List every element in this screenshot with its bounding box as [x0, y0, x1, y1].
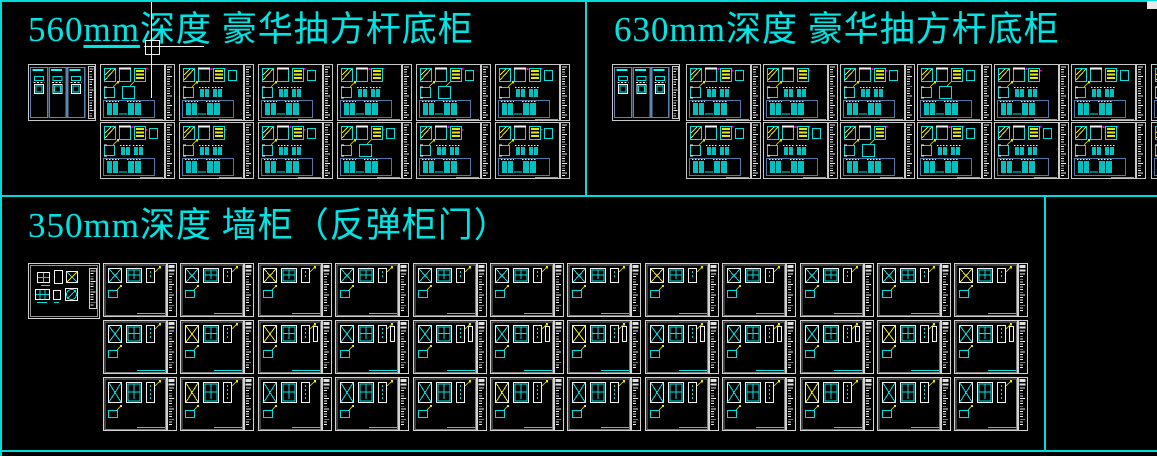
cabinet-elevation-panel[interactable] — [877, 320, 951, 374]
cabinet-elevation-panel-drawing — [180, 320, 254, 374]
cabinet-elevation-panel-drawing — [954, 377, 1028, 431]
cabinet-elevation-panel-drawing — [645, 377, 719, 431]
cabinet-elevation-panel-drawing — [686, 64, 761, 121]
cabinet-elevation-panel[interactable] — [337, 122, 412, 179]
cabinet-elevation-panel[interactable] — [954, 377, 1028, 431]
cabinet-elevation-panel-drawing — [337, 122, 412, 179]
viewport-border-top — [0, 0, 1157, 2]
cabinet-elevation-panel-drawing — [258, 64, 333, 121]
cabinet-elevation-panel[interactable] — [103, 320, 177, 374]
cabinet-elevation-panel[interactable] — [877, 377, 951, 431]
cabinet-elevation-panel-drawing — [800, 263, 874, 317]
cabinet-elevation-panel[interactable] — [180, 263, 254, 317]
cabinet-elevation-panel[interactable] — [800, 263, 874, 317]
cabinet-elevation-panel-drawing — [180, 263, 254, 317]
cabinet-elevation-panel[interactable] — [840, 64, 915, 121]
cabinet-elevation-panel[interactable] — [490, 377, 564, 431]
title-text: 深度 豪华抽方杆底柜 — [140, 10, 474, 49]
cabinet-elevation-panel[interactable] — [917, 64, 992, 121]
clipped-cabinet-panel[interactable] — [1151, 122, 1157, 179]
title-depth-unit: mm — [84, 206, 140, 245]
cabinet-elevation-panel[interactable] — [567, 320, 641, 374]
cabinet-elevation-panel-drawing — [763, 122, 838, 179]
cabinet-elevation-panel[interactable] — [763, 64, 838, 121]
cabinet-elevation-panel[interactable] — [722, 263, 796, 317]
cabinet-elevation-panel-drawing — [180, 377, 254, 431]
cabinet-elevation-panel-drawing — [258, 377, 332, 431]
index-legend-panel-drawing — [28, 263, 100, 319]
clipped-cabinet-panel-drawing — [1151, 64, 1157, 121]
cabinet-elevation-panel[interactable] — [686, 64, 761, 121]
cabinet-elevation-panel-drawing — [917, 64, 992, 121]
cabinet-elevation-panel-drawing — [877, 377, 951, 431]
cabinet-elevation-panel-drawing — [567, 320, 641, 374]
cabinet-elevation-panel[interactable] — [800, 377, 874, 431]
cabinet-elevation-panel-drawing — [490, 377, 564, 431]
screen-artifact — [1147, 1, 1157, 9]
index-legend-panel[interactable] — [28, 64, 96, 121]
cabinet-elevation-panel[interactable] — [258, 377, 332, 431]
cabinet-elevation-panel-drawing — [994, 122, 1069, 179]
cad-drawing-area: 560mm深度 豪华抽方杆底柜 630mm深度 豪华抽方杆底柜 350mm深度 … — [0, 0, 1157, 456]
cabinet-elevation-panel[interactable] — [722, 377, 796, 431]
cabinet-elevation-panel[interactable] — [567, 263, 641, 317]
cabinet-elevation-panel-drawing — [413, 263, 487, 317]
index-legend-panel[interactable] — [28, 263, 100, 320]
cabinet-elevation-panel[interactable] — [335, 320, 409, 374]
cabinet-elevation-panel-drawing — [100, 122, 175, 179]
cabinet-elevation-panel-drawing — [954, 263, 1028, 317]
title-text: 深度 墙柜（反弹柜门） — [140, 206, 510, 245]
cabinet-elevation-panel-drawing — [258, 263, 332, 317]
cabinet-elevation-panel-drawing — [917, 122, 992, 179]
cabinet-elevation-panel[interactable] — [840, 122, 915, 179]
cabinet-elevation-panel[interactable] — [645, 320, 719, 374]
cabinet-elevation-panel-drawing — [763, 64, 838, 121]
cabinet-elevation-panel[interactable] — [103, 377, 177, 431]
cabinet-elevation-panel[interactable] — [917, 122, 992, 179]
section-title-560[interactable]: 560mm深度 豪华抽方杆底柜 — [28, 10, 474, 50]
cabinet-elevation-panel-drawing — [877, 320, 951, 374]
cabinet-elevation-panel[interactable] — [954, 320, 1028, 374]
section-title-630[interactable]: 630mm深度 豪华抽方杆底柜 — [614, 10, 1060, 50]
cabinet-elevation-panel[interactable] — [179, 122, 254, 179]
cabinet-elevation-panel-drawing — [645, 320, 719, 374]
cabinet-elevation-panel-drawing — [258, 122, 333, 179]
cabinet-elevation-panel[interactable] — [490, 263, 564, 317]
cabinet-elevation-panel[interactable] — [994, 64, 1069, 121]
cabinet-elevation-panel-drawing — [800, 320, 874, 374]
clipped-cabinet-panel[interactable] — [1151, 64, 1157, 121]
cabinet-elevation-panel-drawing — [1071, 122, 1146, 179]
cabinet-elevation-panel-drawing — [495, 122, 570, 179]
cabinet-elevation-panel-drawing — [567, 377, 641, 431]
title-depth-value: 350 — [28, 206, 84, 245]
cabinet-elevation-panel[interactable] — [180, 377, 254, 431]
cabinet-elevation-panel[interactable] — [763, 122, 838, 179]
cabinet-elevation-panel-drawing — [840, 122, 915, 179]
cabinet-elevation-panel[interactable] — [258, 122, 333, 179]
cabinet-elevation-panel-drawing — [877, 263, 951, 317]
section-divider-vertical-right — [1044, 195, 1046, 452]
cabinet-elevation-panel[interactable] — [179, 64, 254, 121]
cabinet-elevation-panel[interactable] — [413, 320, 487, 374]
cabinet-elevation-panel[interactable] — [686, 122, 761, 179]
index-legend-panel-drawing — [28, 64, 96, 121]
cabinet-elevation-panel[interactable] — [1071, 64, 1146, 121]
cabinet-elevation-panel[interactable] — [258, 64, 333, 121]
cabinet-elevation-panel-drawing — [103, 377, 177, 431]
cabinet-elevation-panel[interactable] — [335, 377, 409, 431]
cabinet-elevation-panel[interactable] — [335, 263, 409, 317]
cabinet-elevation-panel[interactable] — [416, 122, 491, 179]
cabinet-elevation-panel-drawing — [416, 64, 491, 121]
cabinet-elevation-panel-drawing — [335, 377, 409, 431]
cabinet-elevation-panel[interactable] — [416, 64, 491, 121]
title-depth-value: 560 — [28, 10, 84, 49]
cabinet-elevation-panel[interactable] — [645, 263, 719, 317]
cabinet-elevation-panel-drawing — [1071, 64, 1146, 121]
cabinet-elevation-panel-drawing — [686, 122, 761, 179]
cabinet-elevation-panel-drawing — [800, 377, 874, 431]
cabinet-elevation-panel-drawing — [100, 64, 175, 121]
cabinet-elevation-panel-drawing — [413, 377, 487, 431]
section-divider-horizontal — [0, 195, 1157, 197]
cabinet-elevation-panel-drawing — [179, 64, 254, 121]
clipped-cabinet-panel-drawing — [1151, 122, 1157, 179]
cabinet-elevation-panel[interactable] — [994, 122, 1069, 179]
index-legend-panel[interactable] — [612, 64, 680, 121]
cabinet-elevation-panel-drawing — [337, 64, 412, 121]
cabinet-elevation-panel[interactable] — [877, 263, 951, 317]
cabinet-elevation-panel-drawing — [994, 64, 1069, 121]
cabinet-elevation-panel[interactable] — [954, 263, 1028, 317]
cabinet-elevation-panel[interactable] — [258, 320, 332, 374]
cabinet-elevation-panel[interactable] — [495, 64, 570, 121]
cabinet-elevation-panel[interactable] — [180, 320, 254, 374]
cabinet-elevation-panel-drawing — [722, 263, 796, 317]
title-depth-value: 630 — [614, 10, 670, 49]
cabinet-elevation-panel-drawing — [335, 263, 409, 317]
crosshair-pickbox — [145, 40, 160, 55]
cabinet-elevation-panel-drawing — [490, 320, 564, 374]
cabinet-elevation-panel-drawing — [495, 64, 570, 121]
cabinet-elevation-panel[interactable] — [722, 320, 796, 374]
cabinet-elevation-panel-drawing — [645, 263, 719, 317]
cabinet-elevation-panel-drawing — [722, 377, 796, 431]
cabinet-elevation-panel-drawing — [490, 263, 564, 317]
cabinet-elevation-panel[interactable] — [413, 377, 487, 431]
title-text: 深度 豪华抽方杆底柜 — [726, 10, 1060, 49]
title-depth-unit: mm — [670, 10, 726, 49]
cabinet-elevation-panel[interactable] — [100, 122, 175, 179]
section-title-350[interactable]: 350mm深度 墙柜（反弹柜门） — [28, 206, 510, 246]
viewport-border-bottom — [0, 450, 1157, 452]
title-depth-unit: mm — [84, 10, 140, 49]
cabinet-elevation-panel[interactable] — [337, 64, 412, 121]
cabinet-elevation-panel[interactable] — [1071, 122, 1146, 179]
cabinet-elevation-panel-drawing — [567, 263, 641, 317]
cabinet-elevation-panel[interactable] — [800, 320, 874, 374]
cabinet-elevation-panel-drawing — [413, 320, 487, 374]
cabinet-elevation-panel-drawing — [416, 122, 491, 179]
cabinet-elevation-panel-drawing — [258, 320, 332, 374]
cabinet-elevation-panel[interactable] — [103, 263, 177, 317]
cabinet-elevation-panel-drawing — [722, 320, 796, 374]
section-divider-vertical — [585, 0, 587, 197]
cabinet-elevation-panel-drawing — [103, 320, 177, 374]
cabinet-elevation-panel-drawing — [954, 320, 1028, 374]
viewport-border-left — [0, 0, 2, 456]
cabinet-elevation-panel[interactable] — [100, 64, 175, 121]
cabinet-elevation-panel[interactable] — [490, 320, 564, 374]
cabinet-elevation-panel[interactable] — [567, 377, 641, 431]
cabinet-elevation-panel[interactable] — [495, 122, 570, 179]
cabinet-elevation-panel-drawing — [179, 122, 254, 179]
cabinet-elevation-panel[interactable] — [258, 263, 332, 317]
cabinet-elevation-panel-drawing — [840, 64, 915, 121]
cabinet-elevation-panel[interactable] — [645, 377, 719, 431]
cabinet-elevation-panel-drawing — [335, 320, 409, 374]
cabinet-elevation-panel-drawing — [103, 263, 177, 317]
cabinet-elevation-panel[interactable] — [413, 263, 487, 317]
index-legend-panel-drawing — [612, 64, 680, 121]
